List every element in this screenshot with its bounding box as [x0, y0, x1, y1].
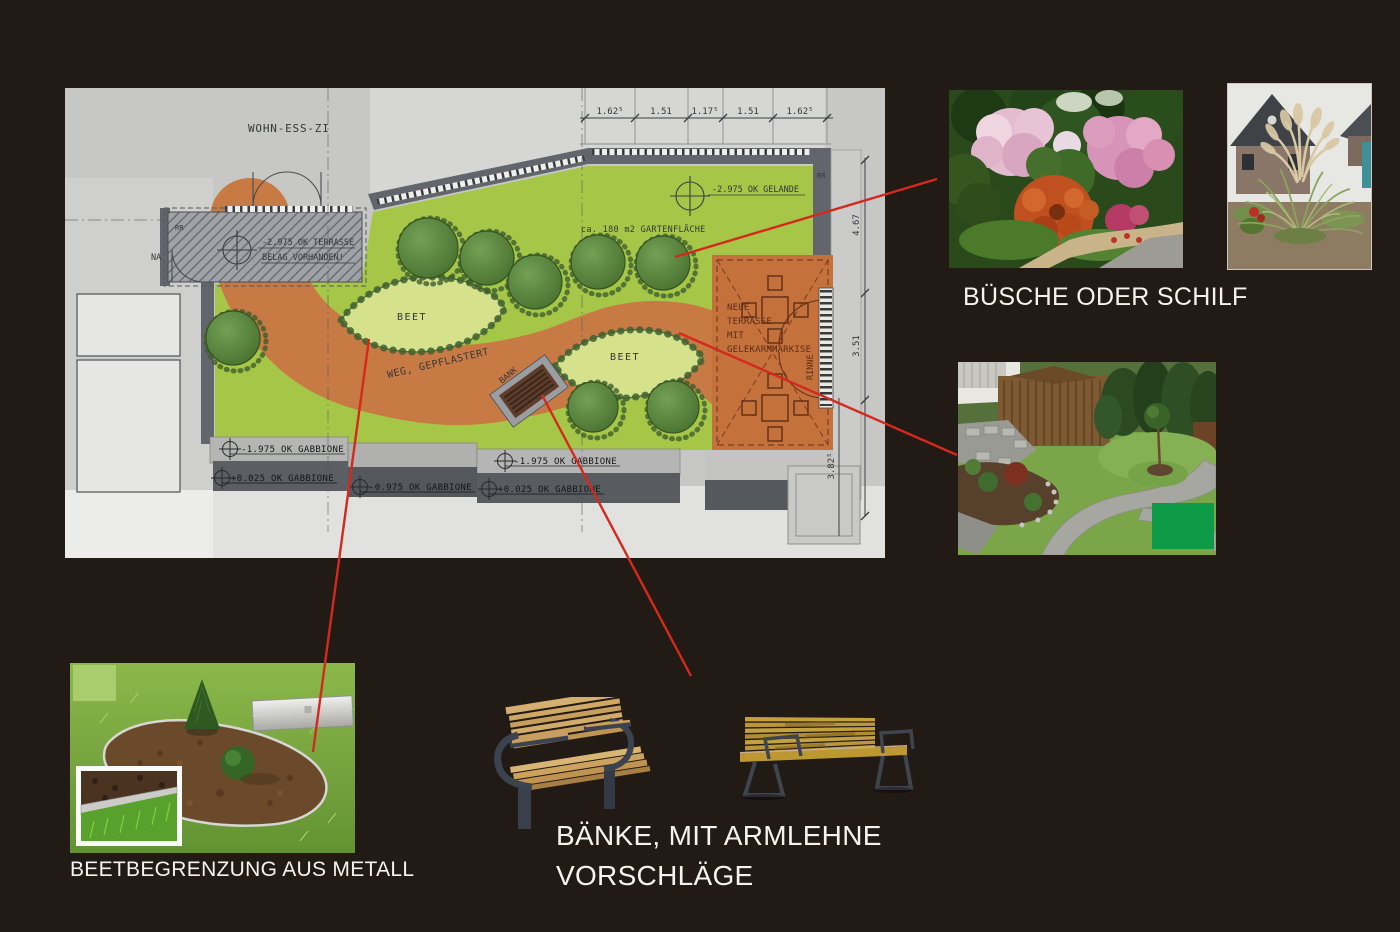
gabion-label-4: -1.975 OK GABBIONE	[514, 457, 617, 467]
edging-title: BEETBEGRENZUNG AUS METALL	[70, 858, 414, 882]
dim-right-2: 3.51	[852, 335, 862, 357]
garden-plan: NEUE TERRASSE MIT GELEKARMMARKISE RINNE …	[65, 88, 885, 558]
dim-top-4: 1.51	[737, 107, 759, 117]
new-terrace-label-4: GELEKARMMARKISE	[727, 345, 811, 355]
gutter-grating	[819, 288, 833, 408]
reed-grass-photo	[1227, 83, 1372, 270]
green-corner-box	[73, 665, 116, 701]
benches-title-line2: VORSCHLÄGE	[556, 860, 754, 892]
new-terrace-label-2: TERRASSE	[727, 317, 772, 327]
ground-level-label: -2.975 OK GELANDE	[712, 185, 799, 195]
dim-top-1: 1.62⁵	[596, 107, 623, 117]
gabion-label-5: +0.025 OK GABBIONE	[498, 485, 601, 495]
metal-edging-sample	[252, 696, 353, 731]
bed-2-label: BEET	[610, 352, 640, 363]
benches-title-line1: BÄNKE, MIT ARMLEHNE	[556, 820, 882, 852]
gabion-label-2: +0.025 OK GABBIONE	[231, 474, 334, 484]
gabion-label-3: -0.975 OK GABBIONE	[369, 483, 472, 493]
bench-curved-image	[480, 697, 655, 832]
garden-plan-drawing: NEUE TERRASSE MIT GELEKARMMARKISE RINNE …	[65, 88, 885, 558]
existing-terrace-level: -2.975 OK TERRASSE	[262, 238, 354, 248]
garden-area-label: ca. 180 m2 GARTENFLÄCHE	[581, 224, 706, 235]
edging-closeup-inset	[76, 766, 182, 846]
room-label: WOHN-ESS-ZI	[248, 122, 330, 135]
dim-top-3: 1.17⁵	[691, 107, 718, 117]
rr-label-2: RR	[817, 172, 826, 180]
bed-edging-photo	[70, 663, 355, 853]
bed-1-label: BEET	[397, 312, 427, 323]
dim-top-5: 1.62⁵	[786, 107, 813, 117]
dim-top-2: 1.51	[650, 107, 672, 117]
new-terrace: NEUE TERRASSE MIT GELEKARMMARKISE RINNE	[712, 255, 833, 450]
existing-terrace-note: BELAG VORHANDEN!	[262, 253, 344, 263]
concept-board-slide: NEUE TERRASSE MIT GELEKARMMARKISE RINNE …	[0, 0, 1400, 932]
dim-right-1: 4.67	[852, 214, 862, 236]
bench-straight-image	[735, 705, 915, 810]
existing-terrace: -2.975 OK TERRASSE BELAG VORHANDEN!	[164, 208, 366, 286]
gutter-label: RINNE	[806, 354, 816, 380]
bushes-photo	[949, 90, 1183, 268]
na-label: NA	[151, 253, 161, 263]
new-terrace-label-3: MIT	[727, 331, 744, 341]
dim-right-3: 3.82⁵	[827, 452, 837, 479]
new-terrace-label-1: NEUE	[727, 303, 749, 313]
rr-label-1: RR	[175, 224, 184, 232]
bushes-title: BÜSCHE ODER SCHILF	[963, 283, 1248, 312]
garden-path-photo	[958, 362, 1216, 555]
green-overlay-box	[1152, 503, 1214, 549]
